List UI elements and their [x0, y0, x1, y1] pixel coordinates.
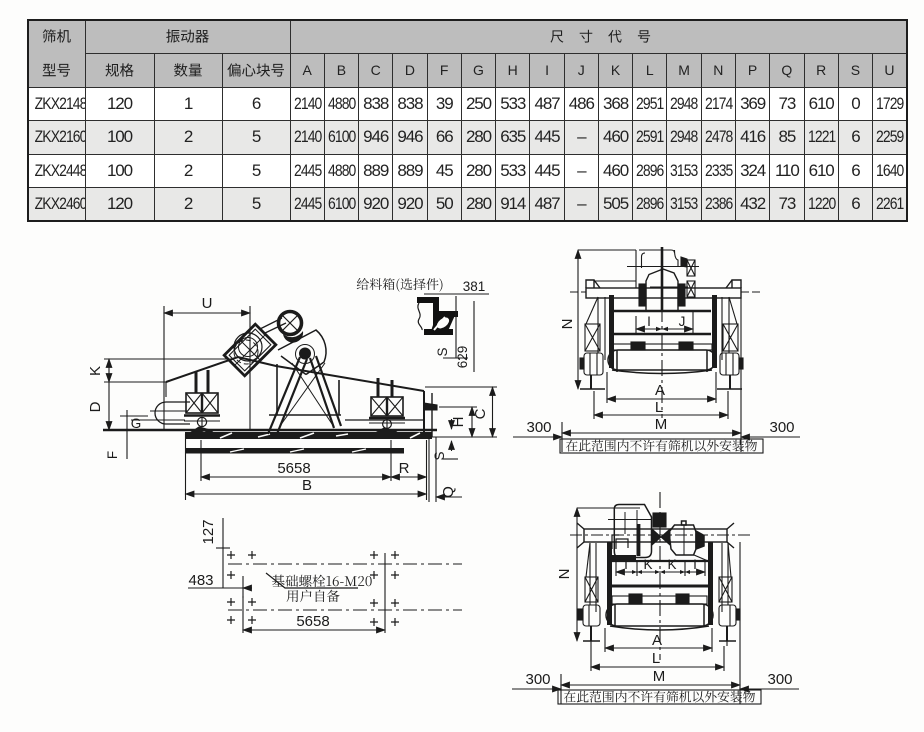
svg-text:300: 300 [526, 419, 551, 436]
svg-text:K: K [87, 366, 104, 376]
svg-text:5658: 5658 [296, 613, 329, 630]
svg-text:I: I [647, 314, 651, 329]
svg-text:D: D [87, 401, 104, 412]
svg-text:R: R [399, 460, 410, 477]
svg-text:N: N [559, 319, 576, 330]
svg-text:M: M [655, 416, 668, 433]
svg-text:I: I [624, 557, 628, 572]
svg-text:300: 300 [767, 671, 792, 688]
svg-text:I: I [693, 557, 697, 572]
svg-text:S: S [435, 347, 450, 356]
svg-text:5658: 5658 [277, 460, 310, 477]
svg-text:L: L [655, 399, 663, 416]
svg-text:B: B [302, 477, 312, 494]
svg-text:K: K [667, 557, 676, 572]
svg-text:127: 127 [200, 519, 217, 544]
svg-text:A: A [652, 632, 662, 649]
svg-text:A: A [655, 382, 665, 399]
svg-text:381: 381 [463, 279, 486, 294]
svg-text:U: U [202, 295, 213, 312]
svg-text:K: K [643, 557, 652, 572]
svg-text:N: N [556, 569, 573, 580]
svg-text:H: H [450, 417, 467, 428]
svg-text:Q: Q [440, 486, 457, 498]
svg-text:300: 300 [525, 671, 550, 688]
svg-text:L: L [652, 650, 660, 667]
svg-text:483: 483 [188, 572, 213, 589]
svg-text:G: G [131, 416, 142, 431]
svg-text:300: 300 [769, 419, 794, 436]
svg-text:M: M [653, 668, 666, 685]
svg-text:C: C [472, 408, 489, 419]
svg-text:S: S [432, 451, 447, 460]
svg-text:J: J [679, 314, 686, 329]
svg-text:F: F [105, 451, 120, 459]
svg-text:629: 629 [455, 346, 470, 369]
